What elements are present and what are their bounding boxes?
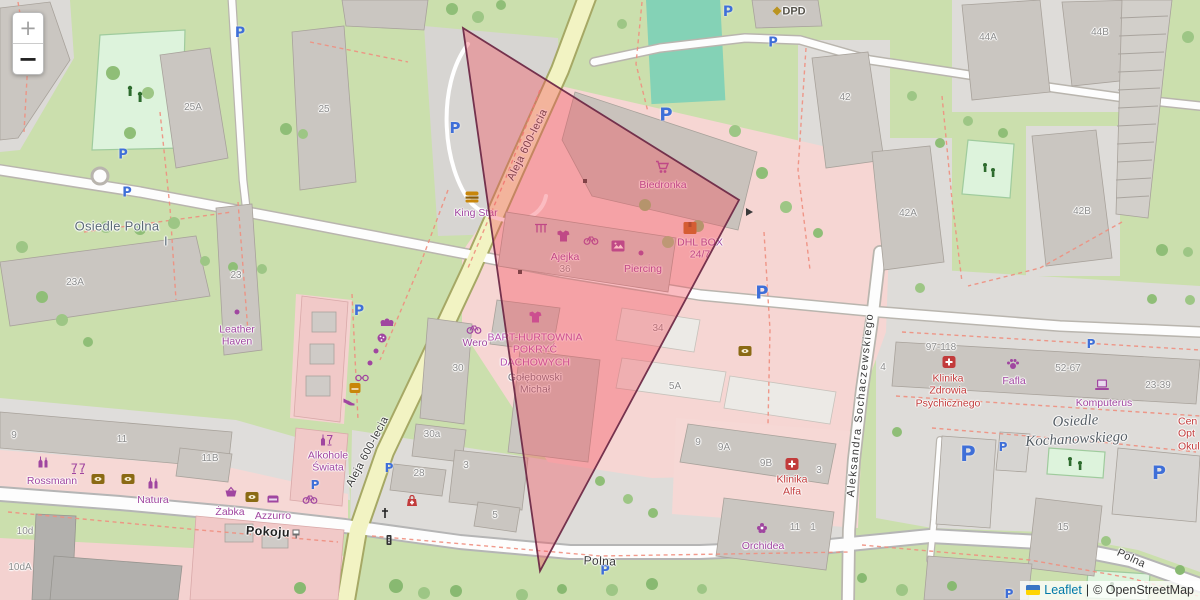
zoom-control: + −: [12, 12, 44, 75]
zoom-out-button[interactable]: −: [13, 44, 43, 74]
attribution-bar: Leaflet | © OpenStreetMap: [1020, 581, 1200, 600]
osm-copyright: © OpenStreetMap: [1093, 583, 1194, 597]
ukraine-flag-icon: [1026, 585, 1040, 595]
leaflet-link[interactable]: Leaflet: [1044, 583, 1082, 597]
zoom-in-button[interactable]: +: [13, 13, 43, 44]
leaflet-map[interactable]: Aleja 600-lecia Aleja 600-lecia Aleksand…: [0, 0, 1200, 600]
attribution-separator: |: [1086, 583, 1089, 597]
